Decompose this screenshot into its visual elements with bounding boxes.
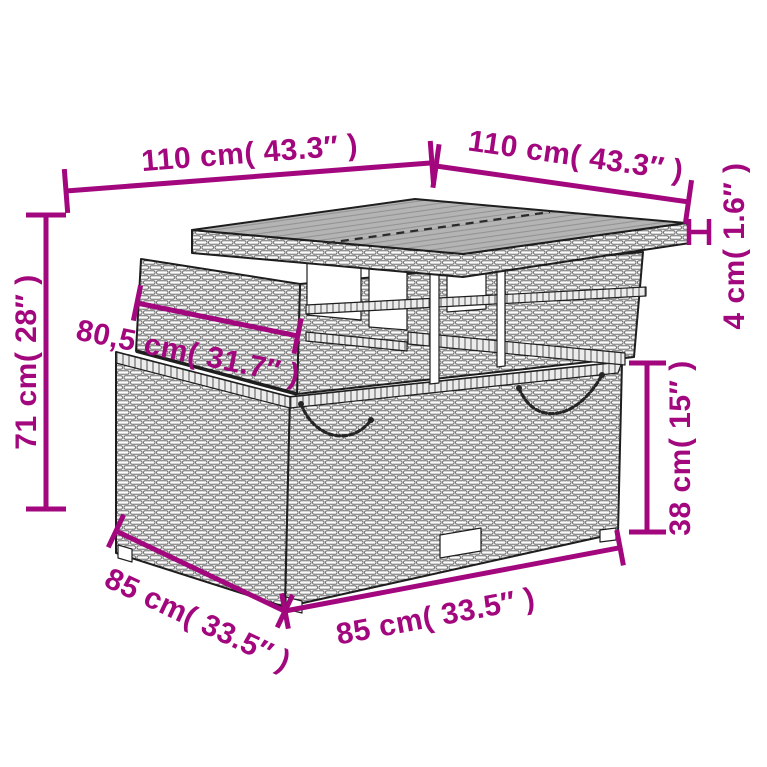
- dimension-tabletop-thickness: 4 cm( 1.6″ ): [689, 162, 751, 329]
- dimension-total-height: 71 cm( 28″ ): [10, 215, 66, 509]
- dimension-label-tabletop-thickness: 4 cm( 1.6″ ): [718, 162, 751, 329]
- dimension-base-height: 38 cm( 15″ ): [629, 360, 697, 535]
- dimension-tick: [64, 169, 67, 213]
- dimension-top-width-left: 110 cm( 43.3″ ): [63, 123, 434, 213]
- dimension-label-top-width-right: 110 cm( 43.3″ ): [466, 124, 686, 187]
- dimension-label-total-height: 71 cm( 28″ ): [10, 274, 43, 449]
- dimension-label-base-width: 85 cm( 33.5″ ): [334, 582, 538, 652]
- dimension-tick: [617, 530, 624, 565]
- product-dimension-diagram: 110 cm( 43.3″ ) 110 cm( 43.3″ ) 71 cm( 2…: [0, 0, 767, 767]
- dimension-tick: [433, 144, 439, 188]
- dimension-label-base-height: 38 cm( 15″ ): [664, 360, 697, 535]
- dimension-tick: [685, 180, 691, 224]
- table-foot: [600, 528, 616, 542]
- diagram-canvas: 110 cm( 43.3″ ) 110 cm( 43.3″ ) 71 cm( 2…: [0, 0, 767, 767]
